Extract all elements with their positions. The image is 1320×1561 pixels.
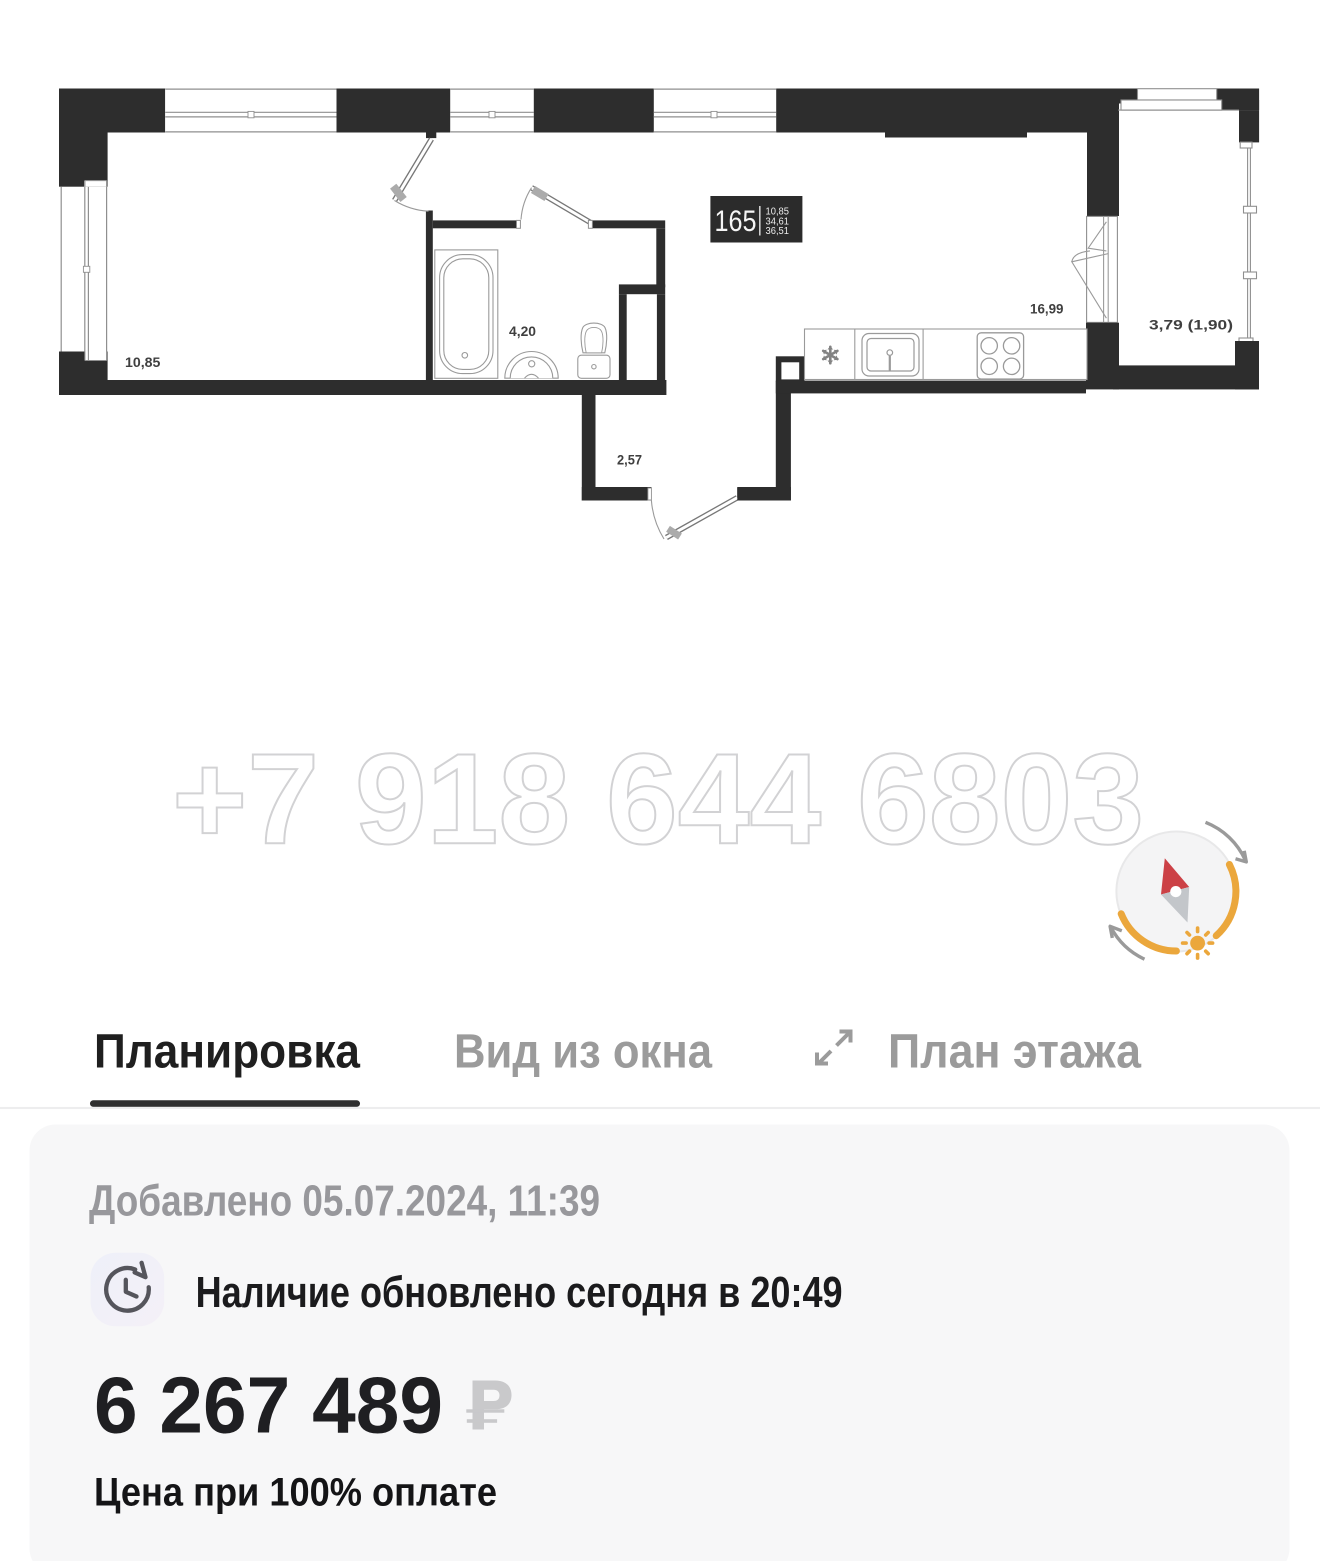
svg-text:36,51: 36,51 xyxy=(766,226,790,237)
svg-text:6 267 489: 6 267 489 xyxy=(94,1361,443,1450)
svg-text:План этажа: План этажа xyxy=(888,1025,1142,1079)
svg-text:165: 165 xyxy=(715,205,757,238)
svg-text:Наличие обновлено сегодня в 20: Наличие обновлено сегодня в 20:49 xyxy=(196,1268,843,1317)
svg-text:Цена при 100% оплате: Цена при 100% оплате xyxy=(94,1471,497,1515)
svg-text:4,20: 4,20 xyxy=(509,324,536,339)
svg-text:3,79 (1,90): 3,79 (1,90) xyxy=(1149,317,1233,332)
svg-text:16,99: 16,99 xyxy=(1030,301,1064,316)
svg-text:10,85: 10,85 xyxy=(125,355,161,370)
svg-text:2,57: 2,57 xyxy=(617,452,642,467)
svg-text:+7 918 644 6803: +7 918 644 6803 xyxy=(172,727,1144,871)
svg-text:Вид из окна: Вид из окна xyxy=(454,1025,713,1079)
svg-text:Планировка: Планировка xyxy=(94,1025,361,1079)
svg-text:Добавлено 05.07.2024, 11:39: Добавлено 05.07.2024, 11:39 xyxy=(89,1177,600,1226)
